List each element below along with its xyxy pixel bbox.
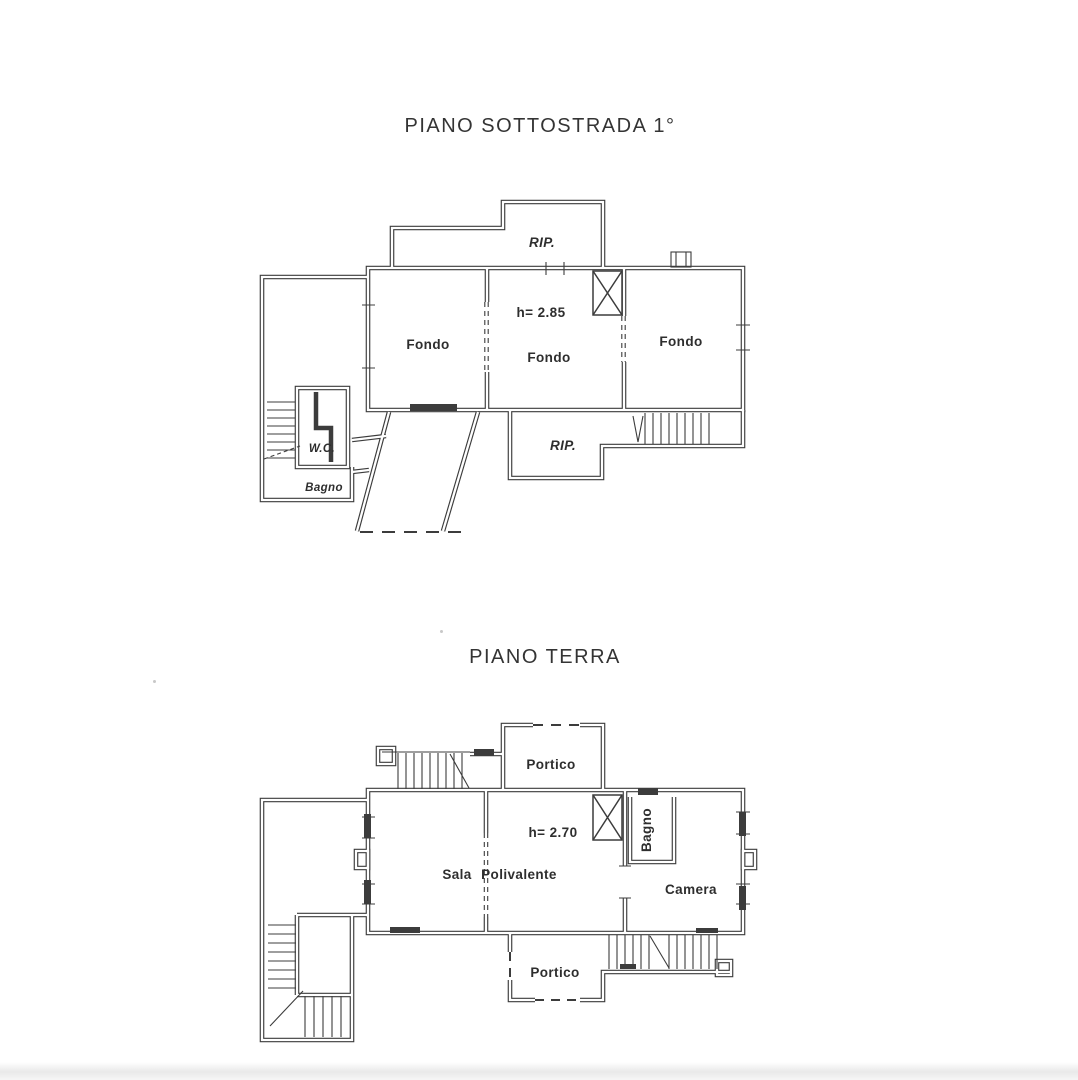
height-note-plan2: h= 2.70 <box>529 825 578 840</box>
plan2-title: PIANO TERRA <box>469 646 621 668</box>
room-label-fondo-left: Fondo <box>406 337 449 352</box>
room-label-portico-bottom: Portico <box>530 965 579 980</box>
room-label-fondo-right: Fondo <box>659 334 702 349</box>
plan-terra: PIANO TERRA <box>262 646 755 1040</box>
page-bottom-shadow <box>0 1062 1078 1080</box>
room-label-camera: Camera <box>665 882 717 897</box>
floorplan-sheet: PIANO SOTTOSTRADA 1° <box>0 0 1078 1080</box>
room-label-portico-top: Portico <box>526 757 575 772</box>
scanned-floorplan-page: PIANO SOTTOSTRADA 1° <box>0 0 1078 1080</box>
room-label-fondo-center: Fondo <box>527 350 570 365</box>
room-label-rip-bottom: RIP. <box>550 438 576 453</box>
room-label-wc: W.C. <box>309 443 335 455</box>
room-label-bagno-plan1: Bagno <box>305 482 343 494</box>
room-label-bagno-plan2: Bagno <box>639 808 654 852</box>
room-label-sala: Sala <box>442 867 471 882</box>
plan1-title: PIANO SOTTOSTRADA 1° <box>404 115 675 137</box>
plan-sottostrada: PIANO SOTTOSTRADA 1° <box>262 115 750 532</box>
scan-speck <box>153 680 156 683</box>
plan1-sills <box>410 404 457 411</box>
height-note-plan1: h= 2.85 <box>517 305 566 320</box>
room-label-polivalente: Polivalente <box>481 867 557 882</box>
scan-speck <box>440 630 443 633</box>
plan2-sills <box>364 749 746 969</box>
room-label-rip-top: RIP. <box>529 235 555 250</box>
